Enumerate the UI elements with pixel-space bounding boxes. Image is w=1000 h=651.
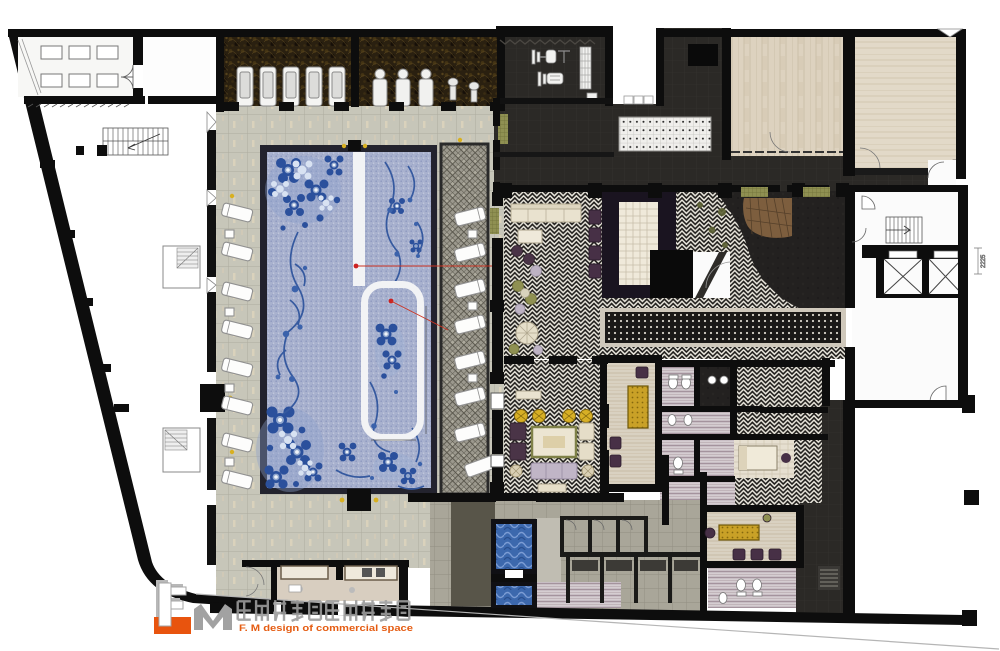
svg-text:F. M design of commercial spac: F. M design of commercial space [239,623,413,634]
svg-text:2225: 2225 [981,254,987,268]
